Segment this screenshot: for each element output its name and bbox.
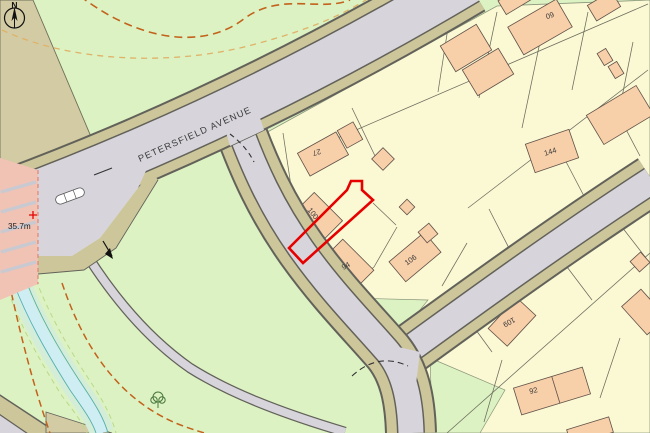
spot-height-label: 35.7m: [8, 222, 31, 231]
north-label: N: [11, 0, 17, 10]
map-canvas[interactable]: 35.7m 60 27 100 94 106 144 109 92 PETERS…: [0, 0, 650, 433]
junction-patch: [392, 346, 420, 384]
